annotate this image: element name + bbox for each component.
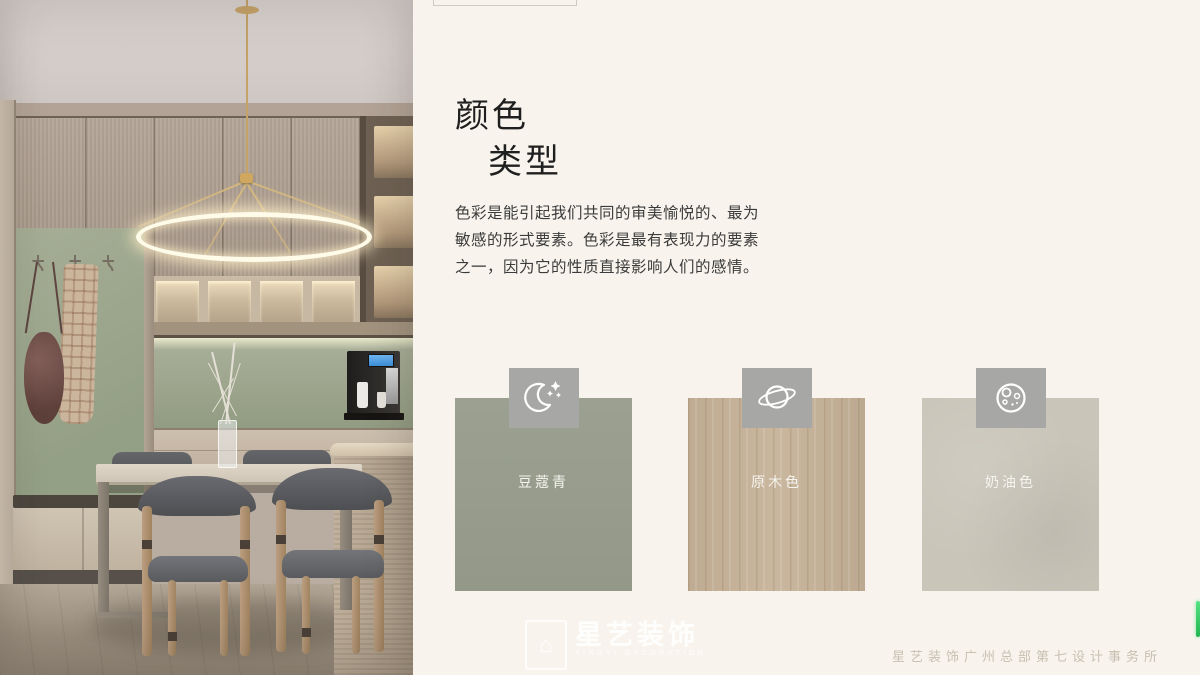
swatch-label: 奶油色 xyxy=(922,472,1099,492)
icon-box xyxy=(509,368,579,428)
cookie-icon xyxy=(991,378,1031,418)
photo-vignette xyxy=(0,0,413,675)
brand-logo: ⌂ xyxy=(525,620,567,670)
page-title: 颜色 类型 xyxy=(455,94,562,186)
brand-subtitle: XINGYI DECORATION xyxy=(575,650,706,657)
brand-watermark: ⌂ 星艺装饰 XINGYI DECORATION xyxy=(525,620,706,670)
swatch-group-naiyouse: 奶油色 xyxy=(922,368,1099,591)
top-rule xyxy=(433,0,577,6)
brand-text: 星艺装饰 XINGYI DECORATION xyxy=(575,620,706,657)
interior-photo xyxy=(0,0,413,675)
intro-line: 之一，因为它的性质直接影响人们的感情。 xyxy=(455,254,785,281)
content-panel: 颜色 类型 色彩是能引起我们共同的审美愉悦的、最为 敏感的形式要素。色彩是最有表… xyxy=(413,0,1200,675)
slide: 颜色 类型 色彩是能引起我们共同的审美愉悦的、最为 敏感的形式要素。色彩是最有表… xyxy=(0,0,1200,675)
title-line-2: 类型 xyxy=(488,140,562,186)
brand-name: 星艺装饰 xyxy=(575,620,706,650)
swatch-group-yuanmuse: 原木色 xyxy=(688,368,865,591)
intro-line: 色彩是能引起我们共同的审美愉悦的、最为 xyxy=(455,200,785,227)
swatch-label: 豆蔻青 xyxy=(455,472,632,492)
icon-box xyxy=(976,368,1046,428)
green-indicator-bar xyxy=(1196,601,1200,637)
intro-line: 敏感的形式要素。色彩是最有表现力的要素 xyxy=(455,227,785,254)
swatch-label: 原木色 xyxy=(688,472,865,492)
moon-stars-icon xyxy=(524,378,564,418)
footer-company-name: 星艺装饰广州总部第七设计事务所 xyxy=(892,646,1162,665)
title-line-1: 颜色 xyxy=(455,94,562,140)
intro-paragraph: 色彩是能引起我们共同的审美愉悦的、最为 敏感的形式要素。色彩是最有表现力的要素 … xyxy=(455,200,785,281)
planet-icon xyxy=(757,378,797,418)
icon-box xyxy=(742,368,812,428)
swatch-group-doukouqing: 豆蔻青 xyxy=(455,368,632,591)
